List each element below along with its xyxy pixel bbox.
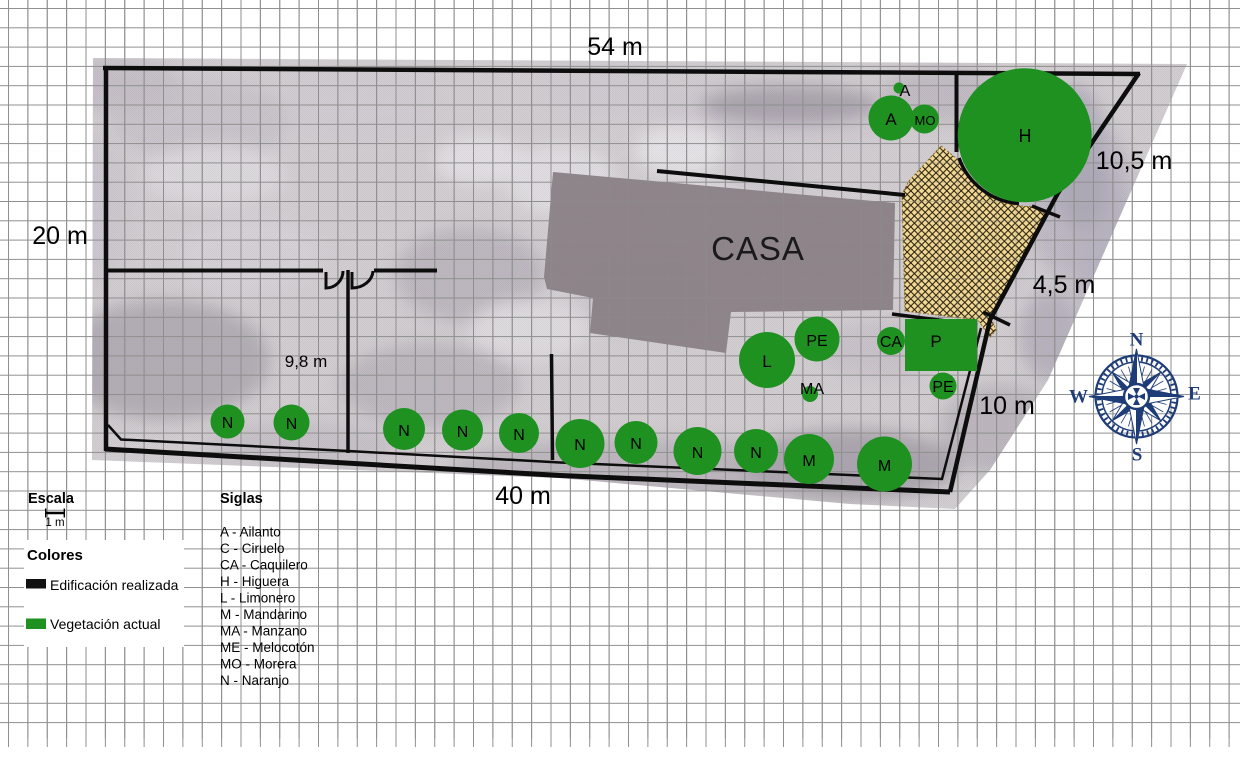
svg-text:9,8 m: 9,8 m — [285, 352, 328, 371]
svg-text:Colores: Colores — [27, 547, 83, 564]
svg-text:Escala: Escala — [28, 491, 75, 507]
svg-text:40 m: 40 m — [495, 482, 551, 510]
svg-text:PE: PE — [806, 333, 827, 350]
svg-text:CA: CA — [880, 334, 903, 351]
svg-text:ME - Melocotón: ME - Melocotón — [220, 640, 315, 655]
svg-text:N: N — [513, 427, 525, 444]
svg-text:H - Higuera: H - Higuera — [220, 574, 290, 589]
svg-text:H: H — [1019, 126, 1032, 146]
svg-text:A - Ailanto: A - Ailanto — [220, 525, 281, 540]
svg-text:MO: MO — [915, 113, 936, 128]
svg-text:MA: MA — [800, 381, 824, 398]
svg-text:10 m: 10 m — [979, 392, 1035, 420]
svg-text:N: N — [750, 445, 762, 462]
svg-text:A: A — [900, 83, 911, 100]
svg-text:P: P — [930, 332, 941, 351]
svg-text:Edificación realizada: Edificación realizada — [50, 577, 179, 593]
svg-text:S: S — [1132, 445, 1143, 466]
svg-text:E: E — [1188, 384, 1201, 405]
svg-text:N: N — [222, 415, 234, 432]
svg-text:L: L — [762, 352, 771, 371]
svg-text:Siglas: Siglas — [220, 491, 263, 507]
svg-text:W: W — [1069, 387, 1088, 408]
svg-text:C - Ciruelo: C - Ciruelo — [220, 541, 285, 556]
svg-text:4,5 m: 4,5 m — [1033, 271, 1096, 299]
svg-text:1 m: 1 m — [45, 517, 64, 529]
svg-text:N - Naranjo: N - Naranjo — [220, 673, 289, 688]
svg-text:MA - Manzano: MA - Manzano — [220, 624, 307, 639]
svg-text:N: N — [574, 437, 586, 454]
svg-text:M: M — [878, 458, 891, 475]
svg-text:CASA: CASA — [711, 230, 805, 267]
svg-text:M - Mandarino: M - Mandarino — [220, 607, 307, 622]
svg-text:N: N — [1130, 330, 1144, 351]
svg-text:MO - Morera: MO - Morera — [220, 657, 297, 672]
svg-text:N: N — [457, 424, 469, 441]
svg-text:N: N — [692, 445, 704, 462]
svg-text:54 m: 54 m — [587, 33, 643, 61]
svg-text:Vegetación actual: Vegetación actual — [50, 616, 161, 632]
svg-text:PE: PE — [932, 379, 953, 396]
svg-text:20 m: 20 m — [32, 222, 88, 250]
svg-text:N: N — [398, 423, 410, 440]
svg-text:N: N — [286, 416, 298, 433]
svg-text:M: M — [802, 453, 815, 470]
svg-text:CA - Caquilero: CA - Caquilero — [220, 558, 308, 573]
svg-text:A: A — [885, 110, 897, 129]
svg-text:L - Limonero: L - Limonero — [220, 591, 295, 606]
svg-text:10,5 m: 10,5 m — [1096, 147, 1172, 175]
svg-text:N: N — [630, 436, 642, 453]
